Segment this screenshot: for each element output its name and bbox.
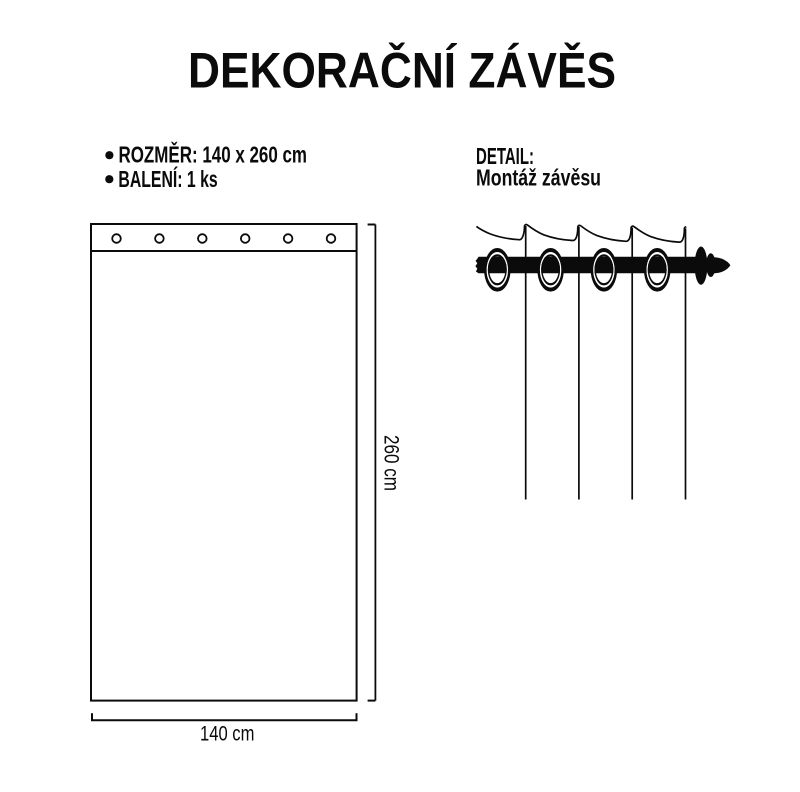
svg-text:Montáž závěsu: Montáž závěsu (476, 165, 601, 191)
svg-text:BALENÍ: 1 ks: BALENÍ: 1 ks (118, 165, 217, 192)
svg-text:140 cm: 140 cm (200, 722, 254, 746)
svg-text:260 cm: 260 cm (380, 435, 404, 491)
svg-text:DEKORAČNÍ ZÁVĚS: DEKORAČNÍ ZÁVĚS (188, 42, 616, 99)
svg-text:ROZMĚR: 140 x 260 cm: ROZMĚR: 140 x 260 cm (119, 141, 308, 168)
